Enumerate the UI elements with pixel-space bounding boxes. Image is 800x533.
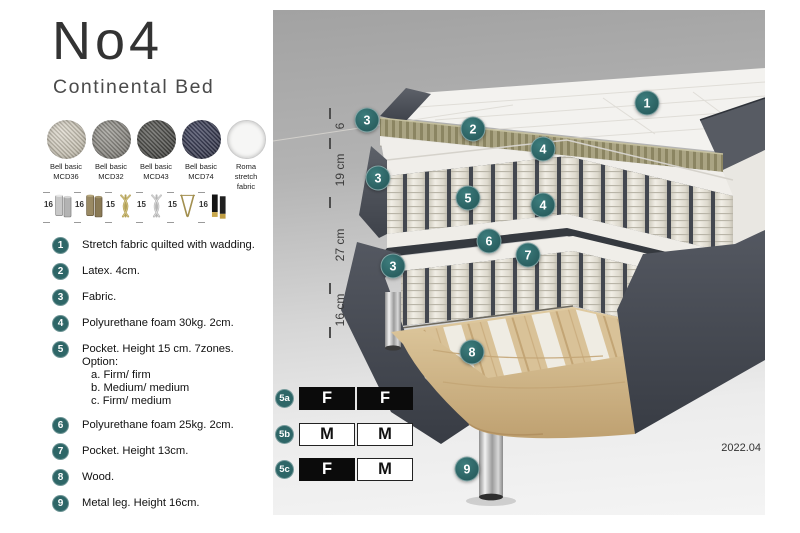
- callout-3: 3: [355, 108, 380, 133]
- feature-number-badge: 5: [52, 341, 69, 358]
- fabric-swatch-icon: [47, 120, 86, 159]
- firmness-row-5a: 5aFF: [275, 387, 413, 410]
- leg-option-hairpin-gold: 15: [167, 186, 198, 230]
- feature-body: Polyurethane foam 25kg. 2cm.: [82, 417, 234, 432]
- callout-8: 8: [460, 340, 485, 365]
- feature-body: Pocket. Height 13cm.: [82, 443, 188, 458]
- leg-option-list: 161615151516: [43, 186, 229, 230]
- leg-height-label: 15: [106, 200, 115, 209]
- callout-2: 2: [461, 117, 486, 142]
- leg-height-tick: [105, 222, 112, 223]
- measurement-label: 27 cm: [333, 229, 347, 262]
- fabric-swatch-label: Bell basicMCD32: [91, 162, 131, 182]
- leg-height-tick: [74, 192, 81, 193]
- fabric-swatch: Bell basicMCD36: [46, 120, 86, 191]
- feature-text: Stretch fabric quilted with wadding.: [82, 237, 255, 252]
- feature-item-5: 5Pocket. Height 15 cm. 7zones. Option:a.…: [52, 341, 270, 408]
- feature-body: Stretch fabric quilted with wadding.: [82, 237, 255, 252]
- feature-item-1: 1Stretch fabric quilted with wadding.: [52, 237, 270, 254]
- product-subtitle: Continental Bed: [53, 76, 214, 99]
- callout-6: 6: [477, 229, 502, 254]
- leg-height-tick: [43, 222, 50, 223]
- measurement-tick: [329, 108, 331, 119]
- fabric-name: Bell basic: [46, 162, 86, 172]
- fabric-swatch-label: Bell basicMCD74: [181, 162, 221, 182]
- firmness-bar: FF: [299, 387, 413, 410]
- measurement-tick: [329, 197, 331, 208]
- leg-height-label: 16: [199, 200, 208, 209]
- leg-height-tick: [43, 192, 50, 193]
- feature-item-3: 3Fabric.: [52, 289, 270, 306]
- leg-height-tick: [198, 222, 205, 223]
- feature-item-6: 6Polyurethane foam 25kg. 2cm.: [52, 417, 270, 434]
- leg-height-tick: [167, 222, 174, 223]
- leg-option-black-gold: 16: [198, 186, 229, 230]
- measurement-label: 16 cm: [333, 294, 347, 327]
- firmness-row-5b: 5bMM: [275, 423, 413, 446]
- fabric-swatch-label: Bell basicMCD43: [136, 162, 176, 182]
- feature-number-badge: 2: [52, 263, 69, 280]
- callout-5: 5: [456, 186, 481, 211]
- firmness-row-badge: 5c: [275, 460, 294, 479]
- leg-height-tick: [105, 192, 112, 193]
- product-info-panel: No4 Continental Bed Bell basicMCD36Bell …: [0, 0, 273, 533]
- feature-body: Polyurethane foam 30kg. 2cm.: [82, 315, 234, 330]
- leg-height-tick: [136, 222, 143, 223]
- fabric-swatch-label: Romastretch fabric: [226, 162, 266, 191]
- fabric-swatch-icon: [182, 120, 221, 159]
- feature-body: Metal leg. Height 16cm.: [82, 495, 200, 510]
- fabric-swatch-label: Bell basicMCD36: [46, 162, 86, 182]
- feature-text: Pocket. Height 15 cm. 7zones. Option:: [82, 341, 270, 369]
- firmness-cell: F: [299, 387, 355, 410]
- feature-number-badge: 6: [52, 417, 69, 434]
- bed-diagram-panel: 619 cm27 cm16 cm 123334456789 5aFF5bMM5c…: [273, 10, 765, 515]
- feature-item-9: 9Metal leg. Height 16cm.: [52, 495, 270, 512]
- fabric-swatch: Bell basicMCD32: [91, 120, 131, 191]
- measurement-tick: [329, 327, 331, 338]
- leg-option-twist-gold: 15: [105, 186, 136, 230]
- leg-icon-twist-silver: [146, 189, 167, 222]
- feature-item-8: 8Wood.: [52, 469, 270, 486]
- fabric-swatch-icon: [227, 120, 266, 159]
- fabric-name: Bell basic: [181, 162, 221, 172]
- leg-icon-cylinder-silver: [53, 189, 74, 222]
- feature-item-4: 4Polyurethane foam 30kg. 2cm.: [52, 315, 270, 332]
- callout-3: 3: [366, 166, 391, 191]
- leg-height-label: 15: [137, 200, 146, 209]
- leg-height-tick: [198, 192, 205, 193]
- leg-height-label: 16: [75, 200, 84, 209]
- feature-text: Wood.: [82, 469, 114, 484]
- fabric-code: stretch fabric: [226, 172, 266, 192]
- feature-text: Metal leg. Height 16cm.: [82, 495, 200, 510]
- leg-height-tick: [74, 222, 81, 223]
- feature-option: a. Firm/ firm: [82, 369, 270, 382]
- firmness-bar: FM: [299, 458, 413, 481]
- callout-7: 7: [516, 243, 541, 268]
- measurement-label: 6: [333, 123, 347, 130]
- leg-option-cylinder-bronze: 16: [74, 186, 105, 230]
- firmness-row-badge: 5b: [275, 425, 294, 444]
- feature-number-badge: 7: [52, 443, 69, 460]
- feature-text: Latex. 4cm.: [82, 263, 140, 278]
- fabric-swatch: Romastretch fabric: [226, 120, 266, 191]
- product-title: No4: [52, 14, 163, 68]
- leg-icon-hairpin-gold: [177, 189, 198, 222]
- firmness-row-badge: 5a: [275, 389, 294, 408]
- leg-icon-twist-gold: [115, 189, 136, 222]
- feature-number-badge: 1: [52, 237, 69, 254]
- feature-text: Pocket. Height 13cm.: [82, 443, 188, 458]
- firmness-cell: M: [357, 423, 413, 446]
- fabric-swatch-list: Bell basicMCD36Bell basicMCD32Bell basic…: [46, 120, 266, 191]
- leg-option-cylinder-silver: 16: [43, 186, 74, 230]
- feature-number-badge: 4: [52, 315, 69, 332]
- fabric-code: MCD36: [46, 172, 86, 182]
- fabric-swatch: Bell basicMCD74: [181, 120, 221, 191]
- measurement-label: 19 cm: [333, 154, 347, 187]
- leg-option-twist-silver: 15: [136, 186, 167, 230]
- firmness-cell: F: [299, 458, 355, 481]
- measurement-tick: [329, 138, 331, 149]
- feature-body: Pocket. Height 15 cm. 7zones. Option:a. …: [82, 341, 270, 408]
- feature-number-badge: 9: [52, 495, 69, 512]
- fabric-code: MCD32: [91, 172, 131, 182]
- leg-height-tick: [167, 192, 174, 193]
- leg-height-label: 15: [168, 200, 177, 209]
- callout-4: 4: [531, 137, 556, 162]
- fabric-swatch-icon: [92, 120, 131, 159]
- firmness-row-5c: 5cFM: [275, 458, 413, 481]
- feature-body: Latex. 4cm.: [82, 263, 140, 278]
- feature-list: 1Stretch fabric quilted with wadding.2La…: [52, 237, 270, 521]
- leg-icon-cylinder-bronze: [84, 189, 105, 222]
- firmness-cell: M: [299, 423, 355, 446]
- feature-option: c. Firm/ medium: [82, 395, 270, 408]
- feature-text: Polyurethane foam 25kg. 2cm.: [82, 417, 234, 432]
- feature-body: Fabric.: [82, 289, 116, 304]
- callout-9: 9: [455, 457, 480, 482]
- fabric-swatch-icon: [137, 120, 176, 159]
- feature-option: b. Medium/ medium: [82, 382, 270, 395]
- fabric-name: Bell basic: [91, 162, 131, 172]
- firmness-cell: F: [357, 387, 413, 410]
- leg-height-tick: [136, 192, 143, 193]
- feature-text: Polyurethane foam 30kg. 2cm.: [82, 315, 234, 330]
- fabric-name: Bell basic: [136, 162, 176, 172]
- fabric-name: Roma: [226, 162, 266, 172]
- feature-options: a. Firm/ firmb. Medium/ mediumc. Firm/ m…: [82, 369, 270, 408]
- fabric-swatch: Bell basicMCD43: [136, 120, 176, 191]
- measurement-tick: [329, 283, 331, 294]
- callout-4: 4: [531, 193, 556, 218]
- firmness-cell: M: [357, 458, 413, 481]
- feature-item-2: 2Latex. 4cm.: [52, 263, 270, 280]
- leg-height-label: 16: [44, 200, 53, 209]
- feature-body: Wood.: [82, 469, 114, 484]
- version-label: 2022.04: [721, 442, 761, 454]
- feature-text: Fabric.: [82, 289, 116, 304]
- leg-icon-black-gold: [208, 189, 229, 222]
- fabric-code: MCD74: [181, 172, 221, 182]
- fabric-code: MCD43: [136, 172, 176, 182]
- feature-number-badge: 8: [52, 469, 69, 486]
- feature-item-7: 7Pocket. Height 13cm.: [52, 443, 270, 460]
- firmness-bar: MM: [299, 423, 413, 446]
- callout-1: 1: [635, 91, 660, 116]
- feature-number-badge: 3: [52, 289, 69, 306]
- callout-3: 3: [381, 254, 406, 279]
- page: No4 Continental Bed Bell basicMCD36Bell …: [0, 0, 800, 533]
